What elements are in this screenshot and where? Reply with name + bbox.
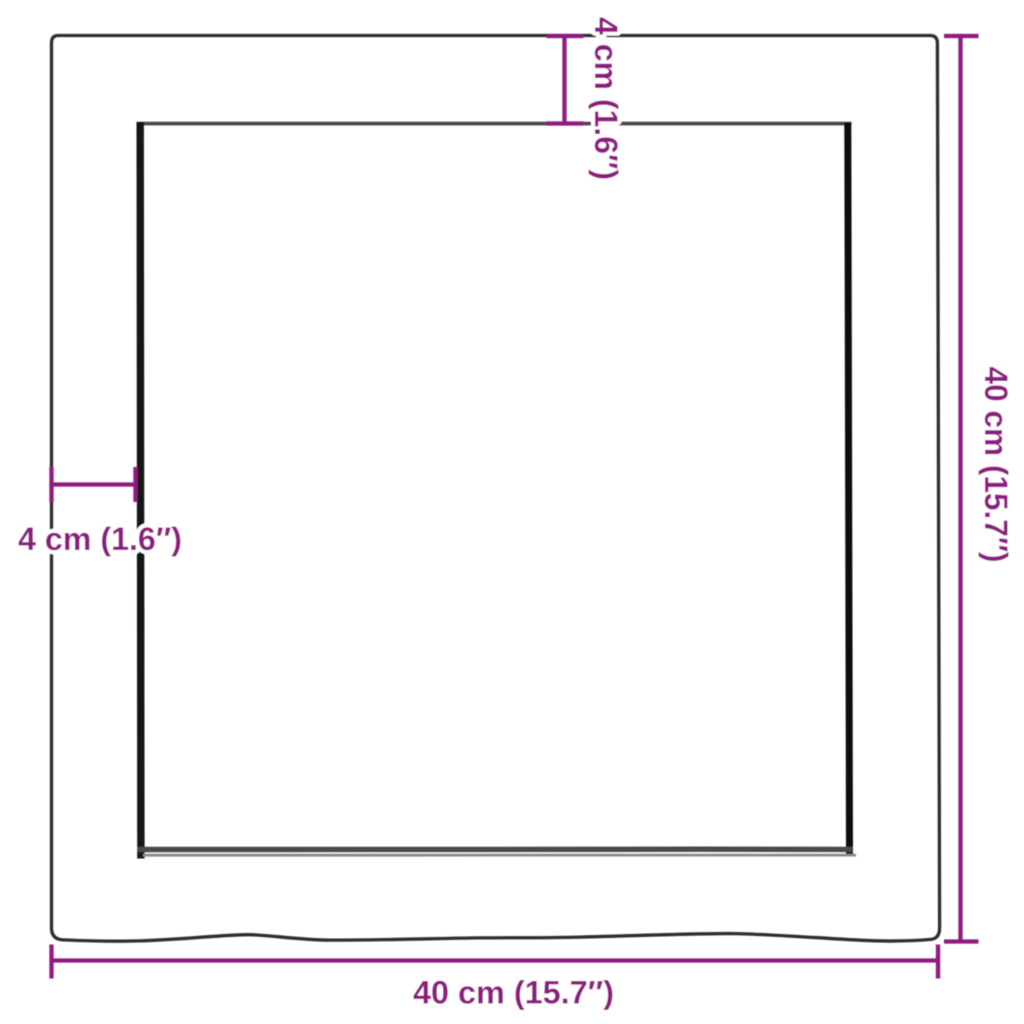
svg-text:4 cm (1.6″): 4 cm (1.6″) bbox=[588, 17, 624, 180]
svg-text:40 cm (15.7″): 40 cm (15.7″) bbox=[978, 367, 1014, 563]
svg-text:4 cm (1.6″): 4 cm (1.6″) bbox=[18, 521, 182, 557]
svg-text:40 cm (15.7″): 40 cm (15.7″) bbox=[413, 975, 614, 1011]
